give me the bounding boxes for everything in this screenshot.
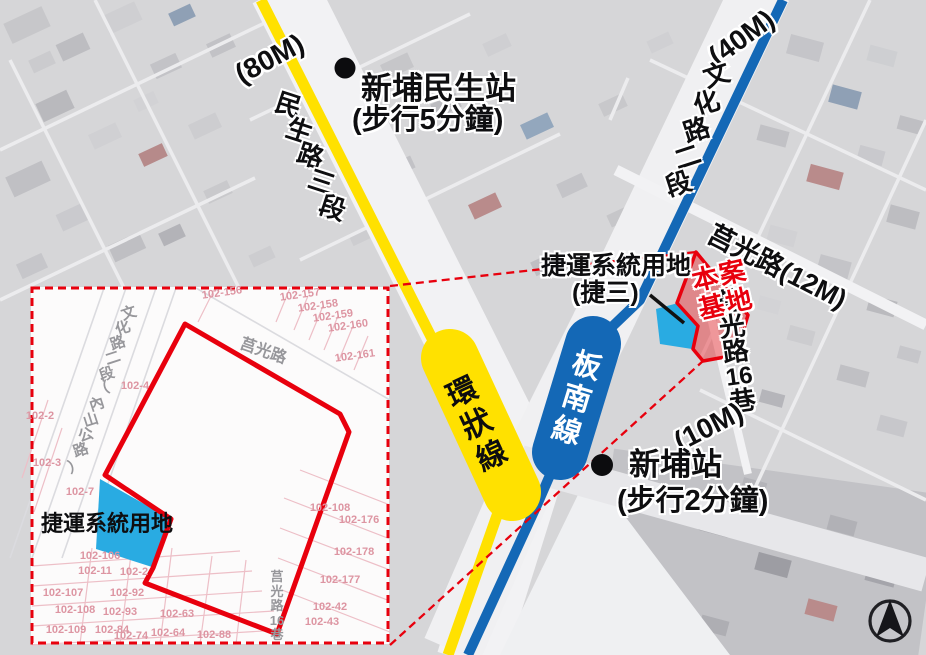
lot-label: 102-43	[298, 616, 346, 628]
lot-label: 102-178	[330, 546, 378, 558]
station-dot-xinpu-minsheng	[335, 58, 356, 79]
lot-label: 102-176	[335, 514, 383, 526]
lot-label: 102-108	[51, 604, 99, 616]
lot-label: 102-3	[23, 457, 71, 469]
lot-label: 102-63	[153, 608, 201, 620]
lot-label: 102-2	[16, 410, 64, 422]
lot-label: 102-92	[103, 587, 151, 599]
station-name-xinpu: 新埔站	[629, 449, 722, 482]
lot-label: 102-107	[39, 587, 87, 599]
site-location-map: (80M) 新埔民生站 (步行5分鐘) (40M) 莒光路(12M) 莒 光 路…	[0, 0, 926, 655]
station-walk-xinpu: (步行2分鐘)	[617, 486, 768, 516]
lot-label: 102-4	[111, 380, 159, 392]
mrt-land-label2: (捷三)	[572, 280, 639, 306]
lot-label: 102-64	[144, 627, 192, 639]
station-walk-xinpu-minsheng: (步行5分鐘)	[352, 105, 503, 135]
lot-label: 102-106	[76, 550, 124, 562]
lot-label: 102-2	[110, 566, 158, 578]
station-name-xinpu-minsheng: 新埔民生站	[361, 73, 516, 106]
lot-label: 102-177	[316, 574, 364, 586]
lot-label: 102-93	[96, 606, 144, 618]
lot-label: 102-7	[56, 486, 104, 498]
lot-label: 102-108	[306, 502, 354, 514]
mrt-land-label: 捷運系統用地	[541, 253, 691, 279]
lot-label: 102-42	[306, 601, 354, 613]
lot-label: 102-88	[190, 629, 238, 641]
inset-road-juguang16: 莒 光 路 16 巷	[266, 570, 288, 643]
north-arrow-icon	[870, 600, 910, 641]
lot-label: 102-109	[42, 624, 90, 636]
station-dot-xinpu	[591, 454, 613, 476]
inset-mrt-land-label: 捷運系統用地	[41, 512, 173, 535]
